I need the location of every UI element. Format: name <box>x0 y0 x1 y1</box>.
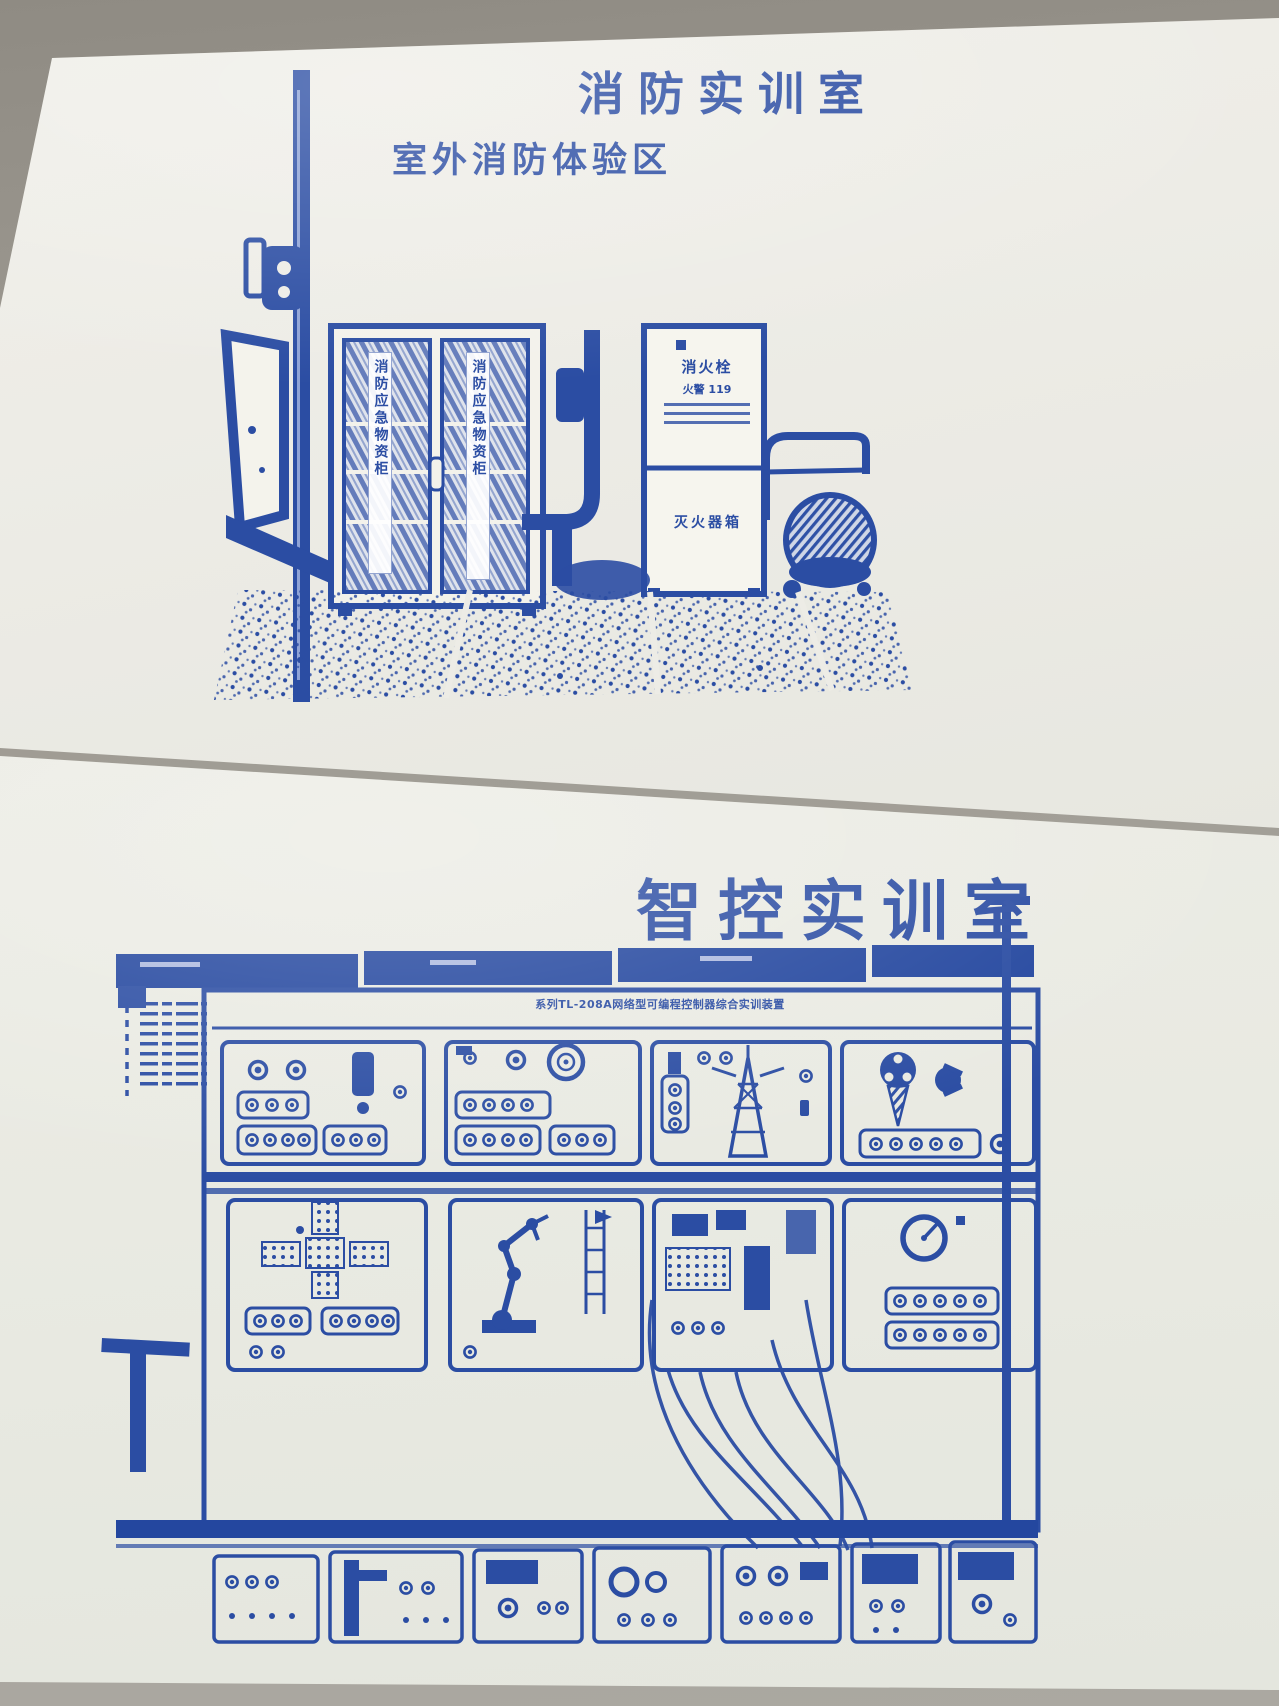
hydrant-label-line2: 火警 119 <box>656 381 758 397</box>
extinguisher-box-label: 灭火器箱 <box>660 512 756 532</box>
supplies-cabinet <box>331 326 543 616</box>
hydrant-label: 消火栓 火警 119 <box>656 356 758 429</box>
fire-training-board: 消防实训室 室外消防体验区 消防应急物资柜 消防应急物资柜 消火栓 火警 119… <box>0 0 1279 840</box>
panel-row2-2-robot-arm <box>450 1200 642 1370</box>
baseboard <box>226 515 332 584</box>
manual-call-point <box>246 240 304 310</box>
outdoor-zone-subtitle: 室外消防体验区 <box>392 132 672 183</box>
window-frame <box>226 335 284 527</box>
wire-bundle <box>650 1300 872 1550</box>
smart-board-title: 智控实训室 <box>636 858 1046 954</box>
cabinet-door-right-label: 消防应急物资柜 <box>466 352 490 580</box>
photo-backdrop: 消防实训室 室外消防体验区 消防应急物资柜 消防应急物资柜 消火栓 火警 119… <box>0 0 1279 1706</box>
smart-control-board: 智控实训室 系列TL-208A网络型可编程控制器综合实训装置 <box>0 740 1279 1706</box>
panel-row1-3-tower <box>652 1042 830 1164</box>
cabinet-handle <box>430 458 443 490</box>
hydrant-label-line1: 消火栓 <box>656 356 758 377</box>
cabinet-door-left-label: 消防应急物资柜 <box>368 352 392 574</box>
fire-room-drawing <box>0 0 1279 840</box>
panel-row2-1-traffic <box>228 1200 426 1370</box>
console-row <box>214 1542 1036 1642</box>
middle-shelf <box>204 1172 1038 1194</box>
panel-row1-1 <box>222 1042 424 1164</box>
bench-bracket <box>101 1338 190 1472</box>
fire-board-title: 消防实训室 <box>578 58 878 124</box>
panel-row2-3-elevator <box>654 1200 832 1370</box>
hydrant-fine-print <box>664 403 750 429</box>
panel-row1-2 <box>446 1042 640 1164</box>
fire-cart <box>766 436 874 598</box>
equipment-name-label: 系列TL-208A网络型可编程控制器综合实训装置 <box>430 996 890 1012</box>
spec-list <box>118 986 208 1096</box>
